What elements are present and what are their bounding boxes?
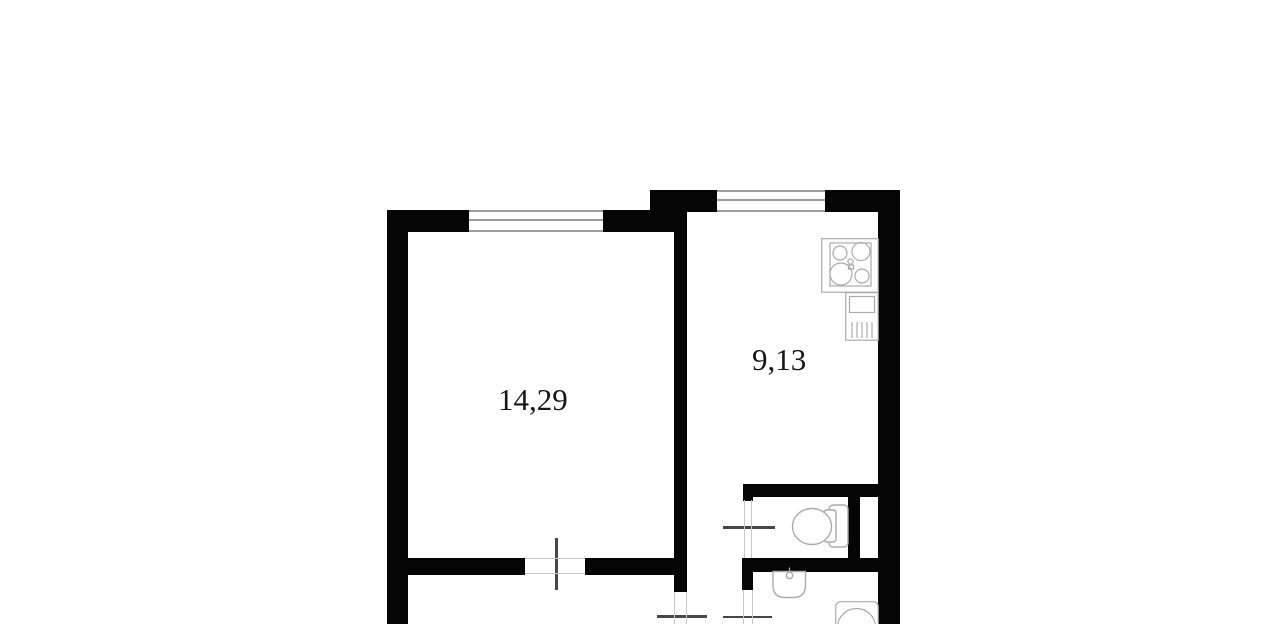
wall-living-kitchen-divider (674, 210, 687, 592)
wall-corridor-stub (742, 558, 753, 590)
kitchen-area-label: 9,13 (752, 344, 806, 375)
kitchen-sink-icon (845, 292, 879, 341)
wall-top-living-right (603, 210, 677, 232)
wc-door-jamb-left-line (744, 500, 745, 558)
living-door-opening-top-line (525, 558, 585, 559)
living-room-door-leaf (555, 538, 558, 590)
wall-top-living-left (387, 210, 469, 232)
wall-living-bottom-left (405, 558, 525, 575)
wall-wc-bathroom-divider (743, 558, 880, 572)
kitchen-window (717, 190, 825, 212)
living-door-opening-bottom-line (525, 573, 585, 574)
corridor-stub-left-line (743, 590, 744, 624)
divider-extension-left-line (674, 592, 675, 624)
wc-door-jamb-right-line (751, 500, 752, 558)
wall-living-bottom-right (585, 558, 677, 575)
wall-wc-top (743, 484, 880, 497)
washbasin-icon (770, 565, 808, 600)
washing-machine-icon (835, 601, 879, 624)
toilet-icon (790, 503, 850, 549)
stove-icon (821, 238, 879, 293)
wc-door-leaf (723, 526, 775, 529)
divider-extension-right-line (686, 592, 687, 624)
corridor-stub-right-line (752, 590, 753, 624)
hall-door-threshold (657, 615, 707, 618)
living-room-window (469, 210, 603, 232)
wall-top-kitchen-left (650, 190, 717, 212)
living-room-area-label: 14,29 (498, 384, 568, 415)
wall-wc-left-stub (743, 484, 753, 501)
floor-plan: 14,29 9,13 (0, 0, 1280, 624)
wall-right-outer (878, 190, 900, 624)
bathroom-door-threshold (723, 616, 772, 618)
